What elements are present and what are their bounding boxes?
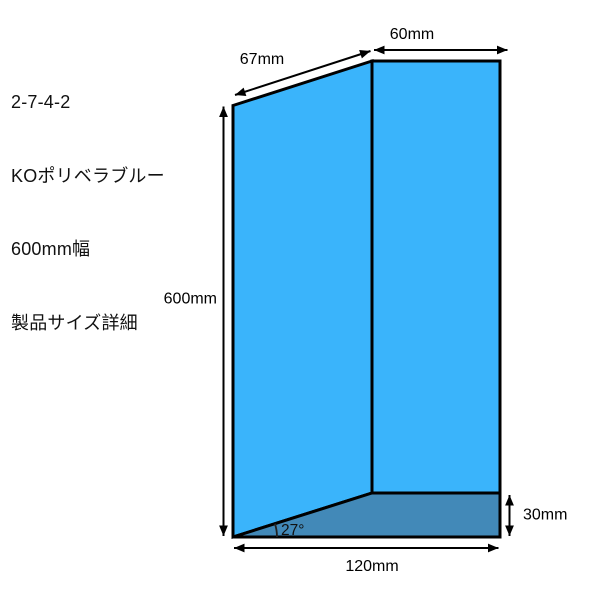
dim-label-top-width: 60mm xyxy=(390,26,434,43)
side-gusset-panel xyxy=(233,61,372,537)
product-size-diagram-canvas: 2-7-4-2 KOポリベラブルー 600mm幅 製品サイズ詳細 60m xyxy=(0,0,600,600)
dim-label-total-width: 120mm xyxy=(345,558,398,575)
dim-label-slant-width: 67mm xyxy=(240,51,284,68)
bag-dimension-drawing: 60mm 67mm 600mm 30mm 120mm 27° xyxy=(0,0,600,600)
dim-label-height: 600mm xyxy=(164,291,217,308)
dim-label-gusset-depth: 30mm xyxy=(523,507,567,524)
dim-label-fold-angle: 27° xyxy=(281,522,304,539)
front-panel xyxy=(372,61,500,493)
bag-shape xyxy=(233,61,500,537)
